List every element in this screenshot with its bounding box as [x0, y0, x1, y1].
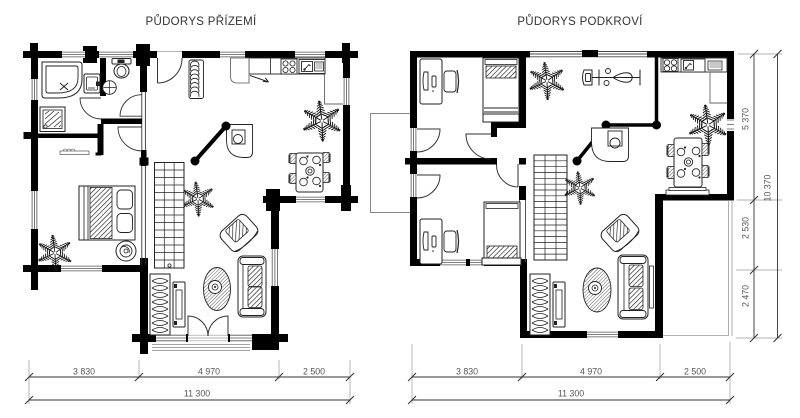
svg-text:2 500: 2 500 [303, 366, 325, 376]
svg-text:PŮDORYS PODKROVÍ: PŮDORYS PODKROVÍ [517, 15, 643, 28]
svg-text:3 830: 3 830 [456, 366, 478, 376]
svg-text:PŮDORYS PŘÍZEMÍ: PŮDORYS PŘÍZEMÍ [146, 15, 258, 28]
svg-text:4 970: 4 970 [198, 366, 220, 376]
svg-text:11 300: 11 300 [558, 389, 584, 399]
svg-text:2 470: 2 470 [741, 285, 751, 307]
svg-text:10 370: 10 370 [763, 174, 773, 201]
svg-text:4 970: 4 970 [580, 366, 602, 376]
svg-text:2 530: 2 530 [741, 217, 751, 239]
svg-text:3 830: 3 830 [73, 366, 95, 376]
svg-text:2 500: 2 500 [684, 366, 706, 376]
svg-text:5 370: 5 370 [741, 108, 751, 130]
svg-text:11 300: 11 300 [184, 389, 210, 399]
